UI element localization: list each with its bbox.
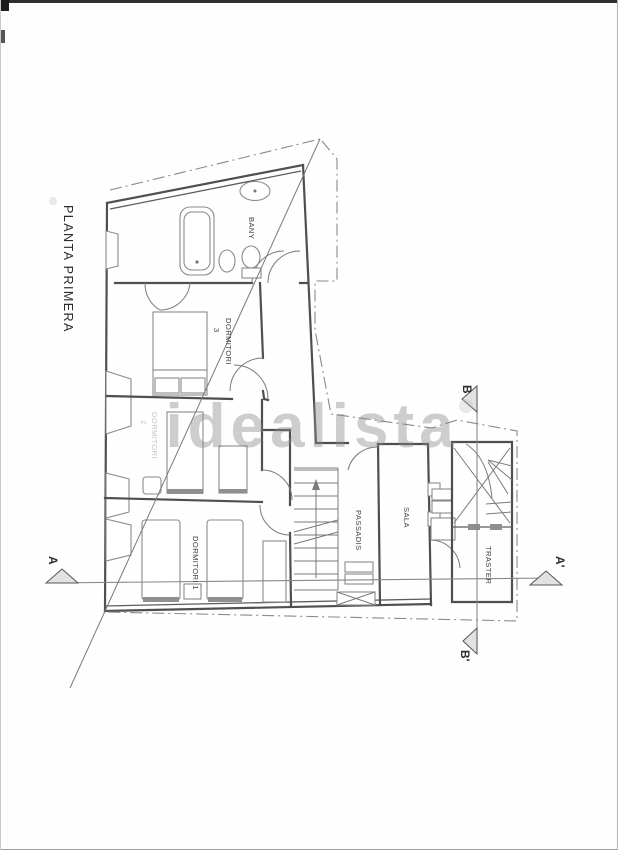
bed [142,520,180,600]
room-number-dormitori3: 3 [212,328,221,333]
scanned-floor-plan-page: A A' B B' BANY DORMITORI 3 DORMITORI 2 D… [0,0,618,850]
toilet-bowl [242,246,260,268]
bed [207,520,243,600]
dormitori3-furniture [153,312,207,395]
section-label-a: A [46,556,60,565]
dormitori1-furniture [142,520,286,602]
pillow [181,378,205,393]
section-label-a-prime: A' [553,556,567,568]
section-label-b: B [460,385,474,394]
section-label-b-prime: B' [458,650,472,662]
room-label-dormitori1: DORMITORI 1 [191,536,200,590]
scan-smudge [459,399,473,413]
wardrobe [263,541,286,602]
room-label-sala: SALA [402,507,411,529]
stair-cross [454,448,510,523]
pillow [155,378,179,393]
scan-smudge [49,197,57,205]
bathtub-drain [195,260,198,263]
toilet-tank [242,268,261,278]
room-label-dormitori2: DORMITORI [150,412,159,459]
floor-plan-drawing: A A' B B' BANY DORMITORI 3 DORMITORI 2 D… [0,0,618,850]
room-label-passadis: PASSADIS [354,510,363,551]
winder-treads [486,460,512,514]
under-stair-cabinet [345,562,373,572]
room-label-bany: BANY [247,217,256,239]
page-title: PLANTA PRIMERA [61,205,75,333]
connector-window [432,501,452,513]
hatched-box [337,592,375,605]
room-number-dormitori2: 2 [139,420,148,425]
under-stair-cabinet [345,574,373,584]
section-arrow-a [46,569,78,583]
bidet [219,250,235,272]
watermark-text: idealista [165,392,458,461]
room-label-traster: TRASTER [484,546,493,584]
nightstand [143,477,161,494]
connector-window [432,489,452,500]
room-label-dormitori3: DORMITORI [224,318,233,365]
